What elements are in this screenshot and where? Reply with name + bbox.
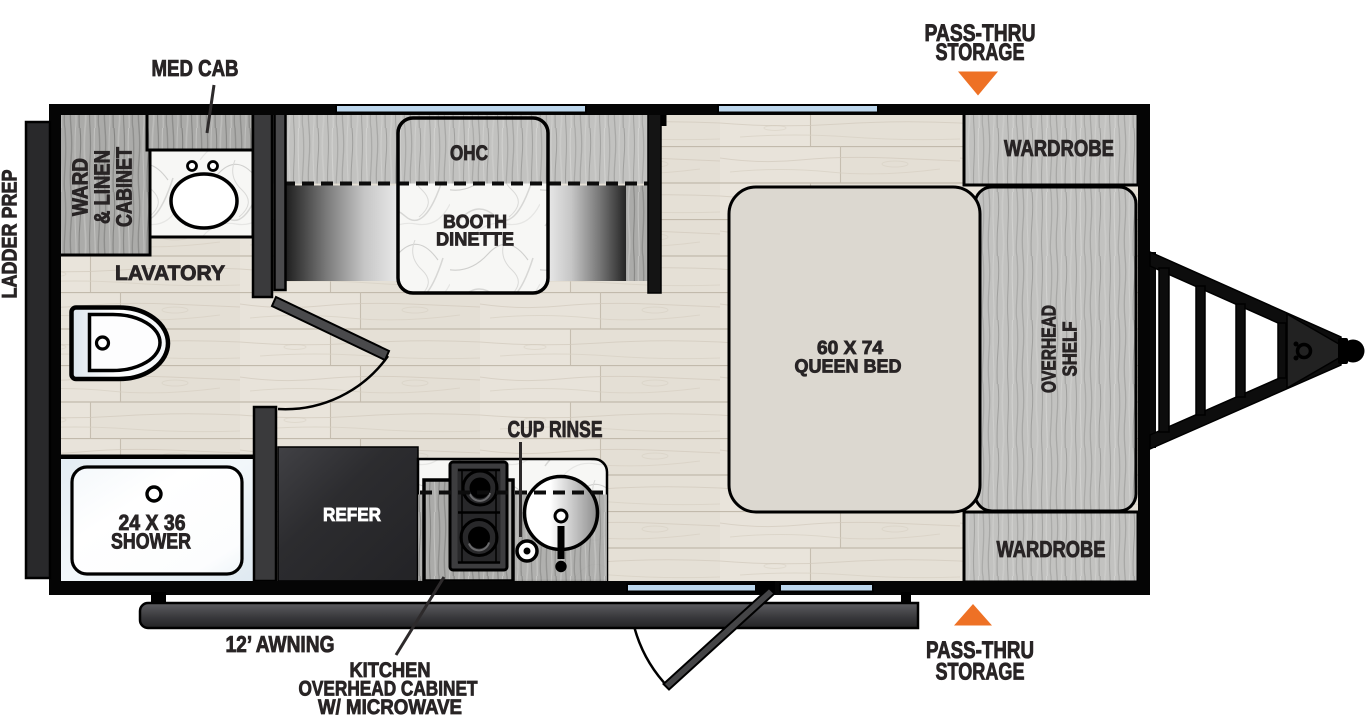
svg-text:STORAGE: STORAGE	[936, 659, 1025, 686]
svg-text:QUEEN BED: QUEEN BED	[795, 357, 902, 378]
svg-text:OVERHEAD: OVERHEAD	[1039, 305, 1061, 393]
svg-text:LAVATORY: LAVATORY	[115, 262, 225, 285]
svg-text:OHC: OHC	[450, 142, 488, 165]
svg-text:CUP RINSE: CUP RINSE	[508, 416, 603, 442]
svg-text:W/ MICROWAVE: W/ MICROWAVE	[318, 696, 462, 719]
svg-text:MED CAB: MED CAB	[152, 55, 239, 81]
svg-text:12’ AWNING: 12’ AWNING	[226, 631, 335, 657]
svg-text:LADDER PREP: LADDER PREP	[0, 170, 22, 299]
svg-text:CABINET: CABINET	[112, 147, 137, 227]
svg-text:SHELF: SHELF	[1060, 322, 1082, 377]
svg-text:SHOWER: SHOWER	[111, 529, 191, 554]
svg-text:WARDROBE: WARDROBE	[1004, 135, 1114, 161]
svg-text:WARDROBE: WARDROBE	[997, 536, 1106, 562]
svg-text:STORAGE: STORAGE	[936, 39, 1025, 66]
svg-text:DINETTE: DINETTE	[436, 230, 514, 251]
svg-text:REFER: REFER	[323, 505, 381, 526]
